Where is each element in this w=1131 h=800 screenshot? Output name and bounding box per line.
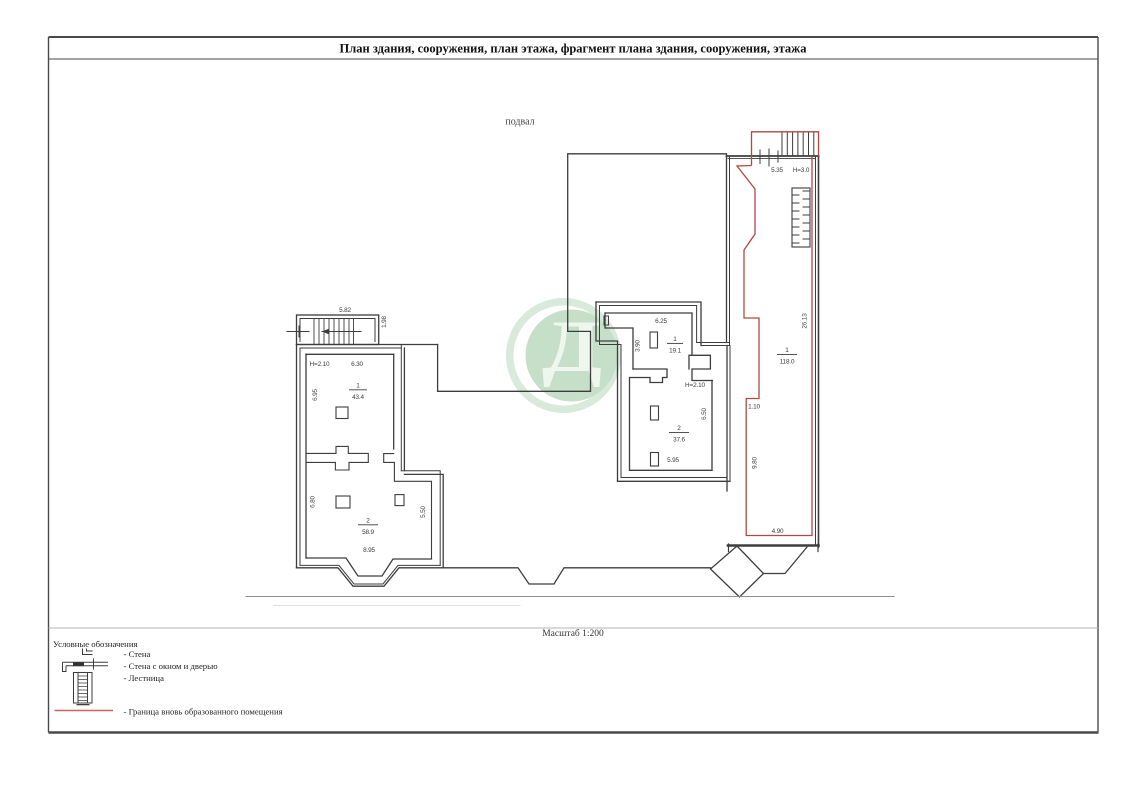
svg-text:1: 1 — [673, 336, 677, 343]
svg-text:6.95: 6.95 — [312, 388, 319, 400]
svg-text:5.95: 5.95 — [667, 457, 679, 464]
svg-text:5.82: 5.82 — [339, 307, 351, 314]
svg-text:5.35: 5.35 — [771, 167, 783, 174]
svg-text:5.50: 5.50 — [420, 505, 427, 517]
svg-text:6.80: 6.80 — [310, 495, 317, 507]
svg-text:19.1: 19.1 — [669, 348, 681, 355]
svg-text:1.98: 1.98 — [381, 315, 388, 327]
svg-text:1: 1 — [785, 347, 789, 354]
svg-text:43.4: 43.4 — [352, 394, 364, 401]
svg-text:6.50: 6.50 — [701, 407, 708, 419]
svg-text:Условные обозначения: Условные обозначения — [53, 639, 137, 649]
svg-text:2: 2 — [677, 425, 681, 432]
svg-text:9.80: 9.80 — [752, 456, 759, 468]
svg-text:2: 2 — [366, 518, 370, 525]
svg-text:- Граница вновь образованного: - Граница вновь образованного помещения — [124, 707, 283, 717]
svg-text:118.0: 118.0 — [780, 359, 795, 366]
svg-text:- Стена: - Стена — [124, 649, 151, 659]
svg-text:6.25: 6.25 — [655, 318, 667, 325]
svg-text:6.30: 6.30 — [351, 361, 363, 368]
svg-text:План здания, сооружения, план: План здания, сооружения, план этажа, фра… — [340, 42, 808, 56]
svg-text:3.90: 3.90 — [635, 339, 642, 351]
svg-text:1: 1 — [356, 383, 360, 390]
svg-text:4.90: 4.90 — [772, 528, 784, 535]
svg-text:H=3.0: H=3.0 — [793, 167, 810, 174]
svg-text:Д: Д — [542, 306, 602, 388]
svg-text:58.9: 58.9 — [362, 529, 374, 536]
svg-text:H=2.10: H=2.10 — [685, 382, 705, 389]
svg-text:подвал: подвал — [505, 117, 534, 128]
svg-text:1.10: 1.10 — [748, 404, 760, 411]
svg-text:H=2.10: H=2.10 — [310, 361, 330, 368]
svg-text:- Лестница: - Лестница — [124, 673, 165, 683]
svg-text:Масштаб 1:200: Масштаб 1:200 — [542, 628, 604, 639]
svg-text:26.13: 26.13 — [802, 313, 809, 329]
svg-text:- Стена с окном и дверью: - Стена с окном и дверью — [124, 661, 219, 671]
svg-text:37.6: 37.6 — [673, 437, 685, 444]
svg-text:8.95: 8.95 — [363, 547, 375, 554]
